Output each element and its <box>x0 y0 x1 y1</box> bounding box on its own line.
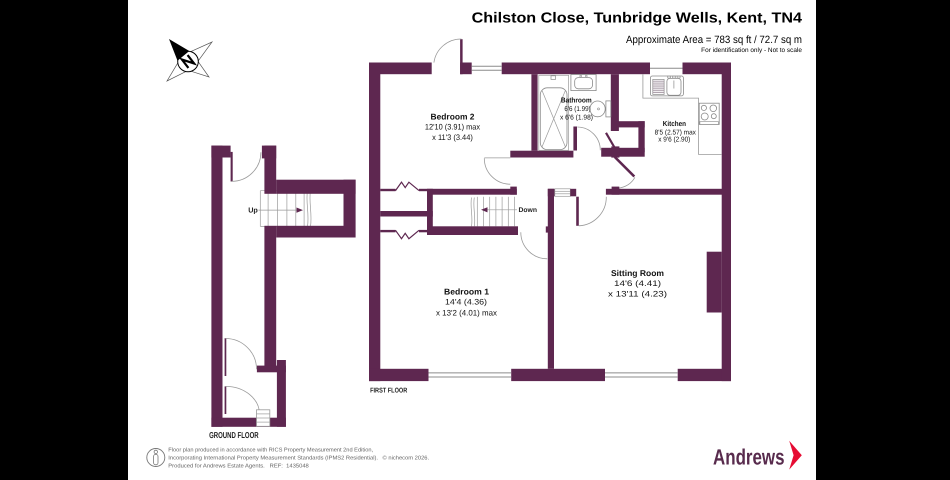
svg-text:12'10 (3.91) max: 12'10 (3.91) max <box>425 123 480 132</box>
svg-text:Floor plan produced in accorda: Floor plan produced in accordance with R… <box>168 447 373 454</box>
svg-text:x 13'11 (4.23): x 13'11 (4.23) <box>608 290 667 299</box>
svg-text:x 6'6 (1.98): x 6'6 (1.98) <box>560 113 593 121</box>
svg-text:Andrews: Andrews <box>713 444 785 469</box>
svg-text:Kitchen: Kitchen <box>663 119 686 128</box>
svg-text:Bedroom 1: Bedroom 1 <box>444 287 489 297</box>
svg-text:x 13'2 (4.01) max: x 13'2 (4.01) max <box>436 308 497 317</box>
svg-text:x 9'6 (2.90): x 9'6 (2.90) <box>658 135 690 143</box>
svg-text:Up: Up <box>248 206 258 215</box>
svg-text:14'4 (4.36): 14'4 (4.36) <box>445 298 487 307</box>
svg-text:Bedroom 2: Bedroom 2 <box>431 111 475 121</box>
svg-text:Chilston Close, Tunbridge Well: Chilston Close, Tunbridge Wells, Kent, T… <box>472 11 803 27</box>
svg-text:© nichecom 2026.: © nichecom 2026. <box>383 455 430 462</box>
svg-text:For identification only - Not: For identification only - Not to scale <box>701 47 802 54</box>
svg-text:Incorporating International Pr: Incorporating International Property Mea… <box>168 455 378 462</box>
svg-text:x 11'3 (3.44): x 11'3 (3.44) <box>432 133 473 142</box>
svg-text:Produced for Andrews Estate Ag: Produced for Andrews Estate Agents. REF:… <box>168 463 308 470</box>
svg-text:FIRST FLOOR: FIRST FLOOR <box>370 387 407 394</box>
svg-text:14'6 (4.41): 14'6 (4.41) <box>614 279 661 288</box>
svg-text:6'6 (1.99): 6'6 (1.99) <box>564 105 590 113</box>
svg-text:Sitting Room: Sitting Room <box>611 268 664 278</box>
svg-text:GROUND FLOOR: GROUND FLOOR <box>209 430 259 440</box>
svg-text:Bathroom: Bathroom <box>561 96 592 105</box>
svg-text:8'5 (2.57) max: 8'5 (2.57) max <box>655 128 697 136</box>
svg-text:Down: Down <box>519 207 538 214</box>
svg-text:Approximate Area = 783 sq ft /: Approximate Area = 783 sq ft / 72.7 sq m <box>626 34 802 46</box>
